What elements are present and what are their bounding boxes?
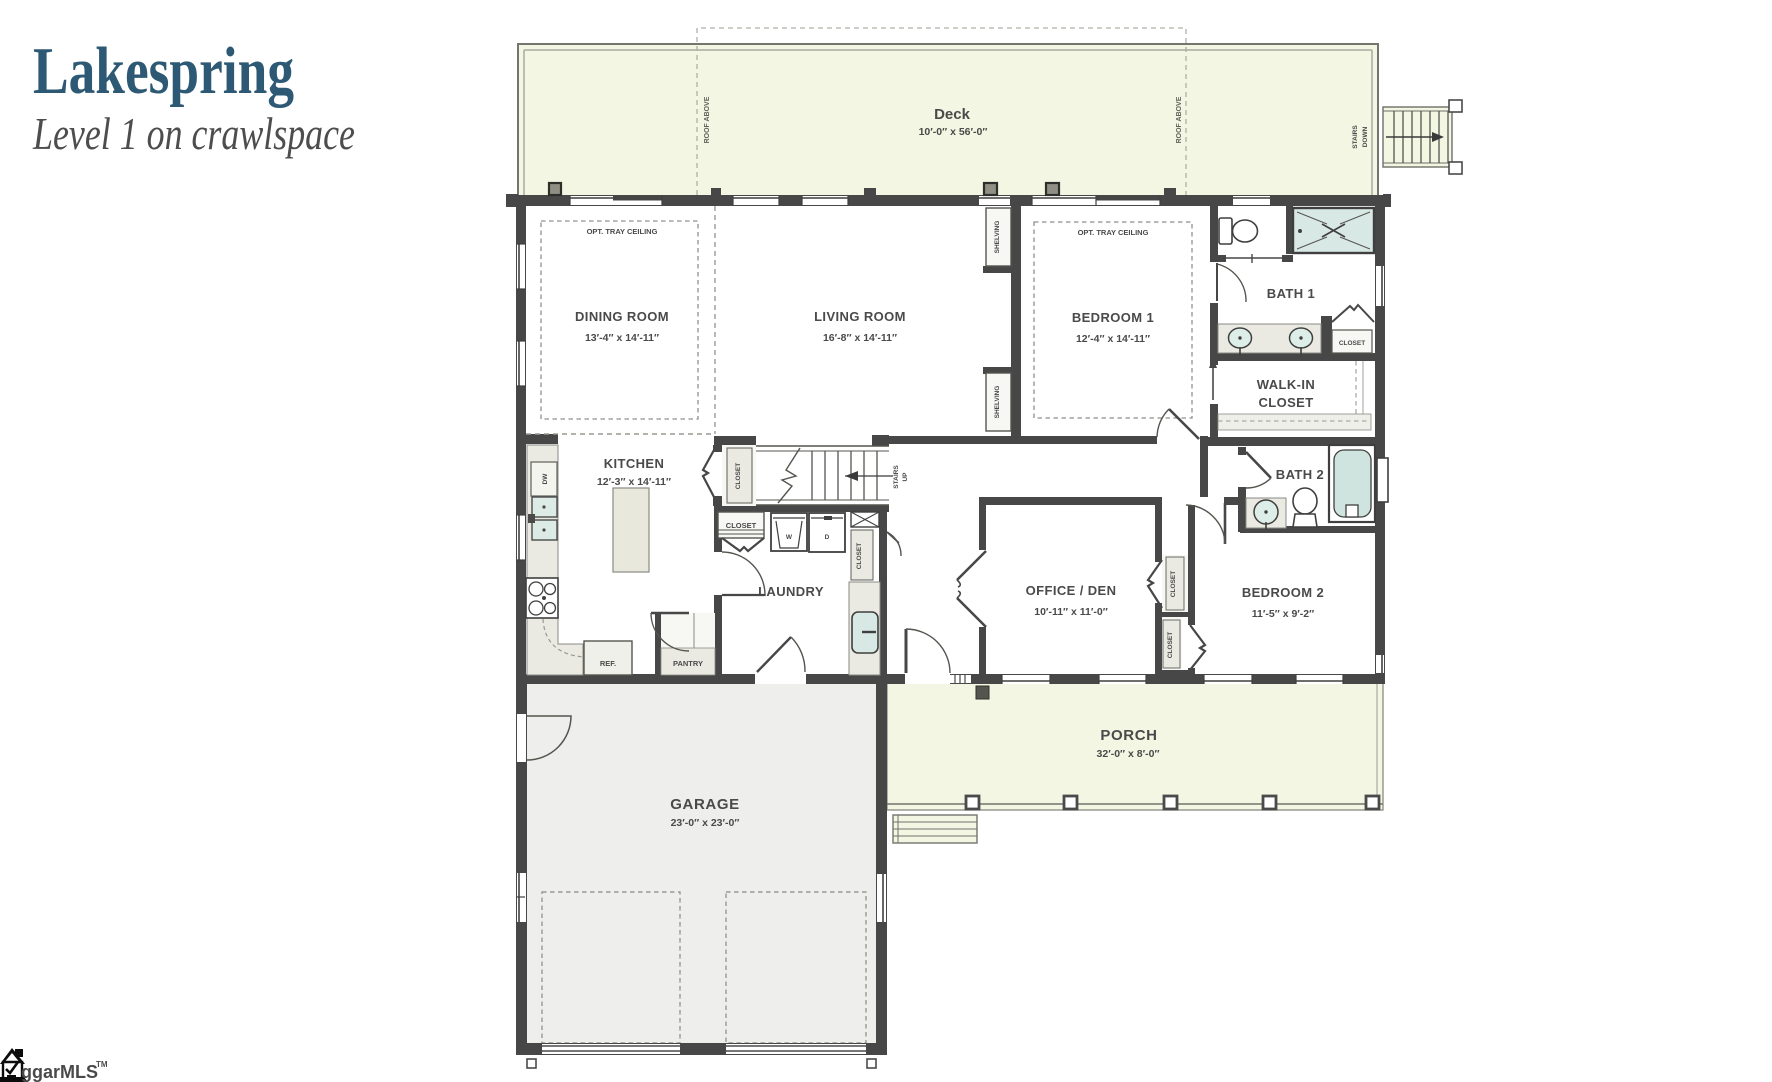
svg-text:W: W [786,534,793,541]
svg-text:LAUNDRY: LAUNDRY [758,584,824,599]
svg-text:13′-4″ x 14′-11″: 13′-4″ x 14′-11″ [585,332,659,344]
svg-text:ggarMLS: ggarMLS [21,1062,98,1082]
svg-text:12′-3″ x 14′-11″: 12′-3″ x 14′-11″ [597,476,671,488]
svg-text:GARAGE: GARAGE [670,796,739,813]
svg-text:STAIRS: STAIRS [1352,125,1359,149]
svg-text:PORCH: PORCH [1100,727,1157,744]
svg-text:23′-0″ x 23′-0″: 23′-0″ x 23′-0″ [671,817,740,829]
svg-text:CLOSET: CLOSET [735,463,742,489]
svg-text:OPT. TRAY CEILING: OPT. TRAY CEILING [587,227,658,236]
svg-text:WALK-IN: WALK-IN [1257,377,1315,392]
svg-text:CLOSET: CLOSET [1167,632,1174,658]
svg-text:KITCHEN: KITCHEN [604,456,665,471]
svg-text:CLOSET: CLOSET [1170,571,1177,597]
svg-text:12′-4″ x 14′-11″: 12′-4″ x 14′-11″ [1076,333,1150,345]
svg-text:CLOSET: CLOSET [1339,340,1365,347]
svg-text:STAIRS: STAIRS [893,465,900,489]
svg-text:Deck: Deck [934,106,971,123]
svg-text:11′-5″ x 9′-2″: 11′-5″ x 9′-2″ [1252,608,1314,620]
svg-text:LIVING ROOM: LIVING ROOM [814,309,906,324]
svg-text:OFFICE / DEN: OFFICE / DEN [1026,583,1117,598]
svg-text:UP: UP [902,472,909,482]
svg-text:Level 1 on crawlspace: Level 1 on crawlspace [32,108,355,159]
svg-text:CLOSET: CLOSET [856,543,863,569]
svg-text:Lakespring: Lakespring [33,34,294,108]
svg-text:CLOSET: CLOSET [1258,395,1313,410]
svg-text:SHELVING: SHELVING [994,221,1001,254]
svg-text:16′-8″ x 14′-11″: 16′-8″ x 14′-11″ [823,332,897,344]
svg-text:10′-0″ x 56′-0″: 10′-0″ x 56′-0″ [919,126,988,138]
svg-text:ROOF ABOVE: ROOF ABOVE [1176,96,1183,143]
svg-text:BEDROOM 2: BEDROOM 2 [1242,585,1324,600]
svg-text:BATH 2: BATH 2 [1276,467,1324,482]
svg-text:SHELVING: SHELVING [994,386,1001,419]
svg-text:10′-11″ x 11′-0″: 10′-11″ x 11′-0″ [1034,606,1107,618]
svg-text:32′-0″ x 8′-0″: 32′-0″ x 8′-0″ [1097,748,1160,760]
svg-text:DW: DW [542,473,549,485]
svg-text:DINING ROOM: DINING ROOM [575,309,669,324]
svg-text:OPT. TRAY CEILING: OPT. TRAY CEILING [1078,228,1149,237]
svg-text:REF.: REF. [600,659,616,668]
svg-text:BATH 1: BATH 1 [1267,286,1315,301]
svg-text:BEDROOM 1: BEDROOM 1 [1072,310,1154,325]
svg-text:PANTRY: PANTRY [673,659,703,668]
svg-text:CLOSET: CLOSET [726,521,757,530]
svg-text:ROOF ABOVE: ROOF ABOVE [704,96,711,143]
svg-text:D: D [825,534,830,541]
svg-text:DOWN: DOWN [1362,126,1369,147]
svg-text:TM: TM [96,1060,108,1069]
